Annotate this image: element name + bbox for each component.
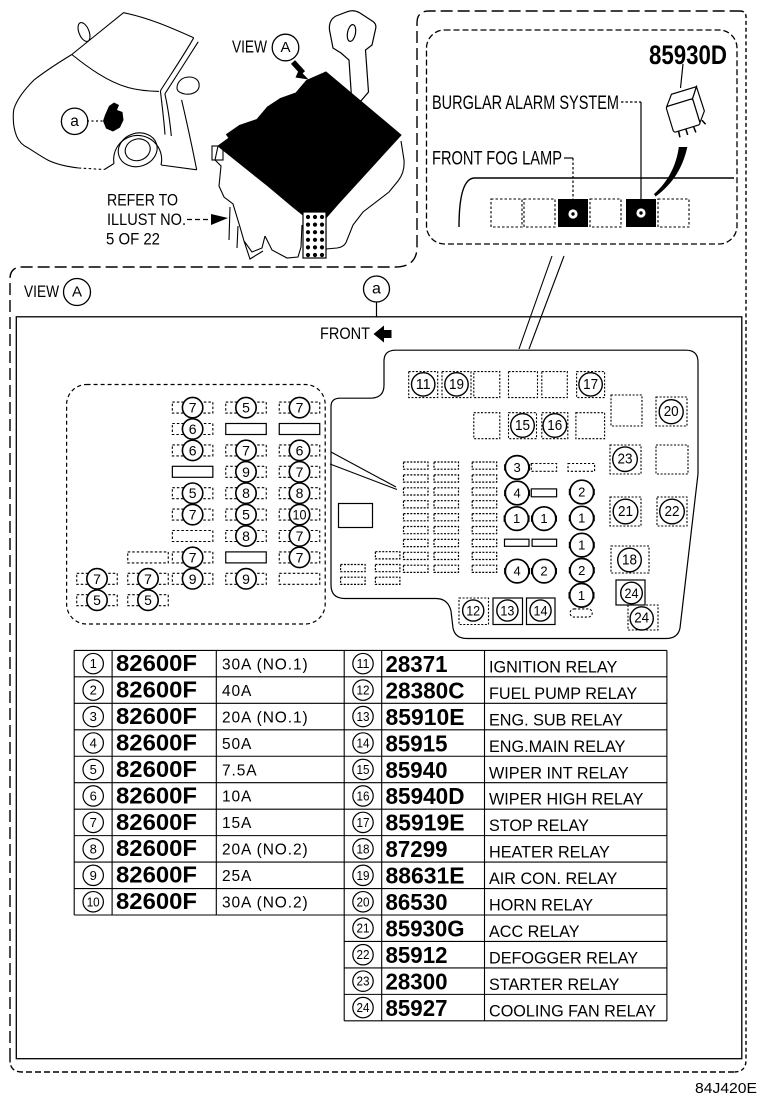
svg-text:19: 19 [449, 376, 464, 393]
svg-text:17: 17 [583, 376, 598, 393]
svg-text:85930G: 85930G [386, 916, 465, 942]
svg-text:VIEW: VIEW [232, 37, 267, 57]
svg-text:82600F: 82600F [116, 862, 197, 888]
svg-text:84J420E: 84J420E [695, 1081, 757, 1097]
svg-text:14: 14 [534, 603, 548, 619]
svg-text:2: 2 [90, 683, 97, 698]
svg-text:7: 7 [189, 549, 197, 565]
svg-text:28371: 28371 [386, 651, 448, 677]
svg-text:STOP RELAY: STOP RELAY [489, 817, 589, 835]
svg-text:87299: 87299 [386, 836, 448, 862]
svg-text:ILLUST NO.: ILLUST NO. [107, 211, 186, 229]
svg-text:85940D: 85940D [386, 783, 465, 809]
svg-text:7: 7 [93, 571, 101, 587]
svg-text:ENG.MAIN RELAY: ENG.MAIN RELAY [489, 738, 626, 756]
svg-text:17: 17 [357, 815, 370, 830]
svg-text:7: 7 [144, 571, 152, 587]
svg-text:3: 3 [90, 709, 97, 724]
svg-text:AIR CON. RELAY: AIR CON. RELAY [489, 870, 618, 888]
svg-text:82600F: 82600F [116, 756, 197, 782]
svg-text:1: 1 [578, 538, 585, 553]
svg-text:REFER TO: REFER TO [107, 192, 178, 210]
svg-text:7.5A: 7.5A [222, 762, 258, 779]
svg-text:30A (NO.2): 30A (NO.2) [222, 895, 309, 912]
svg-text:7: 7 [296, 400, 304, 416]
svg-text:30A (NO.1): 30A (NO.1) [222, 656, 309, 673]
svg-text:21: 21 [357, 921, 370, 936]
svg-text:5: 5 [189, 485, 197, 501]
svg-text:7: 7 [189, 507, 197, 523]
svg-text:24: 24 [357, 1000, 370, 1015]
svg-text:3: 3 [513, 460, 520, 475]
svg-text:2: 2 [540, 564, 547, 579]
svg-text:WIPER HIGH RELAY: WIPER HIGH RELAY [489, 791, 644, 809]
svg-text:10: 10 [87, 894, 100, 909]
svg-text:4: 4 [513, 486, 520, 501]
svg-text:IGNITION RELAY: IGNITION RELAY [489, 658, 618, 676]
svg-text:19: 19 [357, 868, 370, 883]
svg-text:7: 7 [242, 442, 250, 458]
svg-text:4: 4 [513, 564, 520, 579]
svg-text:13: 13 [357, 709, 370, 724]
svg-text:5: 5 [144, 592, 152, 608]
svg-text:18: 18 [622, 552, 637, 569]
svg-text:21: 21 [618, 503, 633, 520]
svg-text:82600F: 82600F [116, 703, 197, 729]
svg-text:1: 1 [540, 511, 547, 526]
svg-text:5: 5 [242, 400, 250, 416]
svg-text:85910E: 85910E [386, 704, 465, 730]
svg-text:16: 16 [357, 788, 370, 803]
svg-text:FRONT: FRONT [320, 325, 370, 343]
svg-text:9: 9 [189, 571, 197, 587]
svg-text:A: A [72, 284, 82, 301]
svg-text:82600F: 82600F [116, 650, 197, 676]
svg-text:FRONT FOG LAMP: FRONT FOG LAMP [432, 147, 562, 169]
svg-text:8: 8 [242, 485, 250, 501]
svg-text:6: 6 [189, 421, 197, 437]
svg-text:12: 12 [466, 603, 480, 619]
svg-text:88631E: 88631E [386, 863, 465, 889]
svg-text:20: 20 [357, 894, 370, 909]
svg-text:BURGLAR ALARM SYSTEM: BURGLAR ALARM SYSTEM [432, 92, 619, 114]
svg-text:7: 7 [296, 549, 304, 565]
svg-text:24: 24 [634, 610, 649, 626]
svg-text:1: 1 [578, 588, 585, 603]
svg-text:82600F: 82600F [116, 809, 197, 835]
svg-text:6: 6 [296, 442, 304, 458]
svg-text:STARTER RELAY: STARTER RELAY [489, 976, 620, 994]
svg-text:11: 11 [357, 656, 370, 671]
svg-text:HEATER RELAY: HEATER RELAY [489, 844, 610, 862]
svg-text:15: 15 [515, 417, 530, 434]
svg-text:9: 9 [90, 868, 97, 883]
svg-text:22: 22 [665, 503, 680, 520]
svg-text:15: 15 [357, 762, 370, 777]
svg-text:a: a [70, 113, 79, 130]
svg-text:6: 6 [189, 442, 197, 458]
svg-text:23: 23 [618, 451, 633, 468]
svg-text:FUEL PUMP RELAY: FUEL PUMP RELAY [489, 685, 637, 703]
svg-text:9: 9 [242, 571, 250, 587]
svg-text:85919E: 85919E [386, 810, 465, 836]
svg-text:28300: 28300 [386, 968, 448, 994]
svg-text:COOLING FAN RELAY: COOLING FAN RELAY [489, 1002, 656, 1020]
svg-text:DEFOGGER RELAY: DEFOGGER RELAY [489, 950, 638, 968]
svg-text:85912: 85912 [386, 942, 448, 968]
svg-text:15A: 15A [222, 815, 252, 832]
svg-text:5: 5 [90, 762, 97, 777]
svg-text:82600F: 82600F [116, 835, 197, 861]
svg-text:85927: 85927 [386, 995, 448, 1021]
svg-text:23: 23 [357, 974, 370, 989]
svg-text:7: 7 [296, 464, 304, 480]
svg-text:50A: 50A [222, 736, 252, 753]
svg-text:8: 8 [242, 528, 250, 544]
svg-text:ACC RELAY: ACC RELAY [489, 923, 580, 941]
svg-text:22: 22 [357, 947, 370, 962]
svg-text:9: 9 [242, 464, 250, 480]
svg-text:7: 7 [296, 528, 304, 544]
svg-text:20: 20 [664, 403, 679, 420]
svg-text:12: 12 [357, 683, 370, 698]
svg-text:HORN RELAY: HORN RELAY [489, 897, 593, 915]
svg-text:1: 1 [513, 511, 520, 526]
svg-text:ENG. SUB RELAY: ENG. SUB RELAY [489, 711, 623, 729]
svg-text:10: 10 [293, 507, 307, 523]
svg-text:VIEW: VIEW [24, 283, 59, 301]
svg-text:a: a [372, 281, 381, 298]
svg-text:40A: 40A [222, 683, 252, 700]
svg-text:85930D: 85930D [649, 40, 727, 70]
svg-text:25A: 25A [222, 868, 252, 885]
svg-text:86530: 86530 [386, 889, 448, 915]
svg-text:28380C: 28380C [386, 677, 465, 703]
svg-text:4: 4 [90, 736, 97, 751]
svg-text:5 OF 22: 5 OF 22 [106, 231, 160, 249]
svg-text:13: 13 [500, 603, 514, 619]
svg-text:82600F: 82600F [116, 677, 197, 703]
svg-text:82600F: 82600F [116, 888, 197, 914]
svg-text:24: 24 [625, 585, 639, 601]
svg-text:16: 16 [547, 417, 562, 434]
svg-text:1: 1 [578, 511, 585, 526]
svg-text:A: A [280, 39, 290, 56]
svg-text:2: 2 [578, 563, 585, 578]
svg-text:82600F: 82600F [116, 782, 197, 808]
svg-text:WIPER INT RELAY: WIPER INT RELAY [489, 764, 629, 782]
svg-text:1: 1 [90, 656, 97, 671]
svg-text:82600F: 82600F [116, 729, 197, 755]
svg-text:5: 5 [93, 592, 101, 608]
svg-text:2: 2 [578, 485, 585, 500]
svg-text:11: 11 [416, 376, 431, 393]
svg-text:7: 7 [189, 400, 197, 416]
svg-text:10A: 10A [222, 789, 252, 806]
svg-text:7: 7 [90, 815, 97, 830]
svg-text:5: 5 [242, 507, 250, 523]
svg-text:6: 6 [90, 788, 97, 803]
svg-text:18: 18 [357, 841, 370, 856]
svg-text:20A (NO.1): 20A (NO.1) [222, 709, 309, 726]
svg-text:8: 8 [90, 841, 97, 856]
svg-text:20A (NO.2): 20A (NO.2) [222, 842, 309, 859]
svg-text:8: 8 [296, 485, 304, 501]
svg-text:85915: 85915 [386, 730, 448, 756]
svg-text:14: 14 [357, 736, 370, 751]
svg-text:85940: 85940 [386, 757, 448, 783]
